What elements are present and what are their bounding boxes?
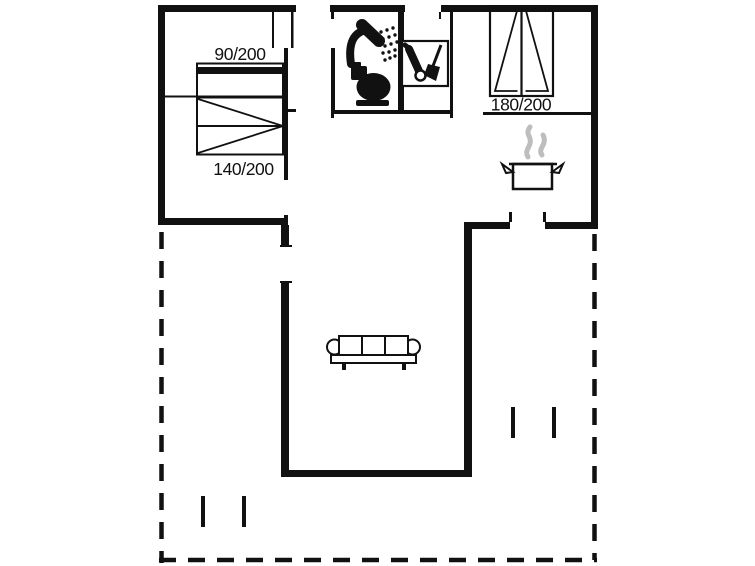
bed-90-label: 90/200: [214, 44, 266, 64]
terrace-mark: [242, 496, 246, 527]
steam-icon: [527, 127, 531, 157]
sofa-seat: [331, 355, 416, 363]
bed-90-icon: [165, 64, 284, 98]
vacuum-wheel: [416, 71, 426, 81]
wall-segment: [330, 5, 405, 12]
wall-segment: [158, 218, 288, 225]
cooking-pot-icon: [502, 127, 563, 189]
wall-segment: [591, 5, 598, 229]
shower-icon: [350, 25, 399, 64]
bed-140-icon: [197, 98, 283, 155]
wall-segment: [158, 5, 165, 225]
terrace-dashed-boundary: [159, 232, 597, 563]
jamb-tick: [280, 281, 292, 283]
terrace-mark: [511, 407, 515, 438]
bed-headboard-bar: [197, 67, 283, 74]
jamb-tick: [509, 212, 512, 222]
pot-body: [513, 164, 552, 189]
door-leaf: [272, 12, 274, 48]
toilet-base: [356, 100, 389, 106]
bed-140-label: 140/200: [213, 159, 274, 179]
floorplan-canvas: 90/200 140/200 180/200: [0, 0, 755, 566]
jamb-tick: [439, 12, 441, 19]
steam-icon: [541, 135, 545, 155]
wall-segment: [281, 225, 289, 247]
terrace-mark: [552, 407, 556, 438]
bed-180-icon: [490, 7, 553, 96]
wall-segment: [281, 470, 472, 477]
bed-180-label: 180/200: [491, 95, 552, 115]
sofa-icon: [327, 336, 420, 370]
wall-segment: [331, 110, 453, 114]
sofa-back: [339, 336, 408, 355]
jamb-tick: [543, 212, 546, 222]
wall-segment: [284, 215, 288, 225]
bed-duvet-triangle: [495, 9, 518, 91]
wall-segment: [450, 12, 453, 112]
shower-head: [362, 25, 379, 41]
bed-diagonal: [198, 126, 283, 153]
terrace-mark: [201, 496, 205, 527]
pot-handle: [502, 164, 513, 173]
wall-segment: [464, 222, 472, 477]
bed-diagonal: [198, 99, 283, 126]
bed-duvet-triangle: [526, 9, 549, 91]
jamb-tick: [284, 109, 296, 112]
toilet-icon: [351, 62, 391, 106]
pot-handle: [552, 164, 563, 173]
vacuum-broom-icon: [402, 41, 448, 86]
terrace-marks: [201, 407, 556, 527]
sofa-foot: [402, 363, 406, 370]
wall-segment: [281, 283, 289, 477]
wall-segment: [284, 48, 288, 180]
toilet-bowl: [357, 73, 391, 101]
jamb-tick: [280, 245, 292, 247]
sofa-foot: [342, 363, 346, 370]
door-leaf: [291, 12, 294, 48]
wall-segment: [331, 110, 334, 118]
wall-segment: [331, 48, 335, 110]
jamb-tick: [331, 12, 334, 19]
wall-segment: [545, 222, 598, 229]
wall-segment: [450, 110, 453, 118]
wall-segment: [464, 222, 510, 229]
wall-segment: [158, 5, 296, 12]
